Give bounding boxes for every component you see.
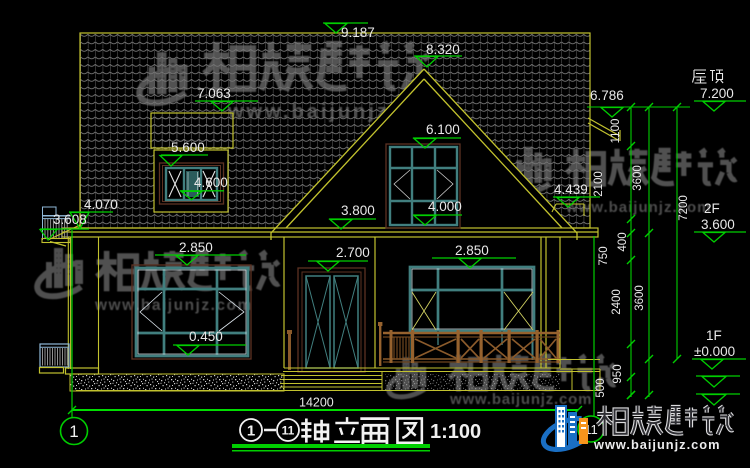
svg-text:www.baijunjz.com: www.baijunjz.com — [449, 391, 592, 408]
svg-text:2.850: 2.850 — [455, 243, 489, 258]
svg-text:400: 400 — [617, 232, 629, 251]
svg-text:www.baijunjz.com: www.baijunjz.com — [593, 437, 720, 452]
svg-text:2.850: 2.850 — [179, 240, 213, 255]
svg-text:11: 11 — [282, 424, 295, 438]
svg-text:3600: 3600 — [634, 285, 646, 311]
svg-text:3.608: 3.608 — [53, 212, 87, 227]
svg-text:3.800: 3.800 — [341, 203, 375, 218]
svg-text:6.100: 6.100 — [426, 122, 460, 137]
svg-text:±0.000: ±0.000 — [694, 344, 735, 359]
svg-text:4.000: 4.000 — [428, 199, 462, 214]
svg-text:2F: 2F — [704, 201, 720, 216]
svg-text:4.439: 4.439 — [554, 182, 588, 197]
svg-text:0.450: 0.450 — [189, 329, 223, 344]
svg-text:2400: 2400 — [611, 289, 623, 315]
svg-text:4.600: 4.600 — [194, 175, 228, 190]
svg-text:3.600: 3.600 — [701, 217, 735, 232]
svg-text:9.187: 9.187 — [341, 25, 375, 40]
svg-text:3600: 3600 — [632, 165, 644, 191]
svg-text:7.200: 7.200 — [700, 86, 734, 101]
svg-text:1100: 1100 — [610, 119, 622, 144]
svg-text:7200: 7200 — [678, 195, 690, 221]
svg-text:1: 1 — [247, 423, 255, 440]
svg-text:4.070: 4.070 — [84, 197, 118, 212]
svg-text:500: 500 — [595, 378, 607, 397]
svg-text:6.786: 6.786 — [590, 88, 624, 103]
svg-text:750: 750 — [598, 246, 610, 265]
svg-text:7.063: 7.063 — [197, 86, 231, 101]
svg-text:1F: 1F — [706, 328, 722, 343]
svg-text:8.320: 8.320 — [426, 42, 460, 57]
svg-text:5.600: 5.600 — [171, 140, 205, 155]
svg-text:2100: 2100 — [593, 171, 605, 197]
svg-text:14200: 14200 — [299, 396, 334, 410]
svg-text:1: 1 — [69, 422, 78, 441]
svg-text:1:100: 1:100 — [430, 421, 481, 443]
svg-text:950: 950 — [612, 364, 624, 383]
svg-text:2.700: 2.700 — [336, 245, 370, 260]
